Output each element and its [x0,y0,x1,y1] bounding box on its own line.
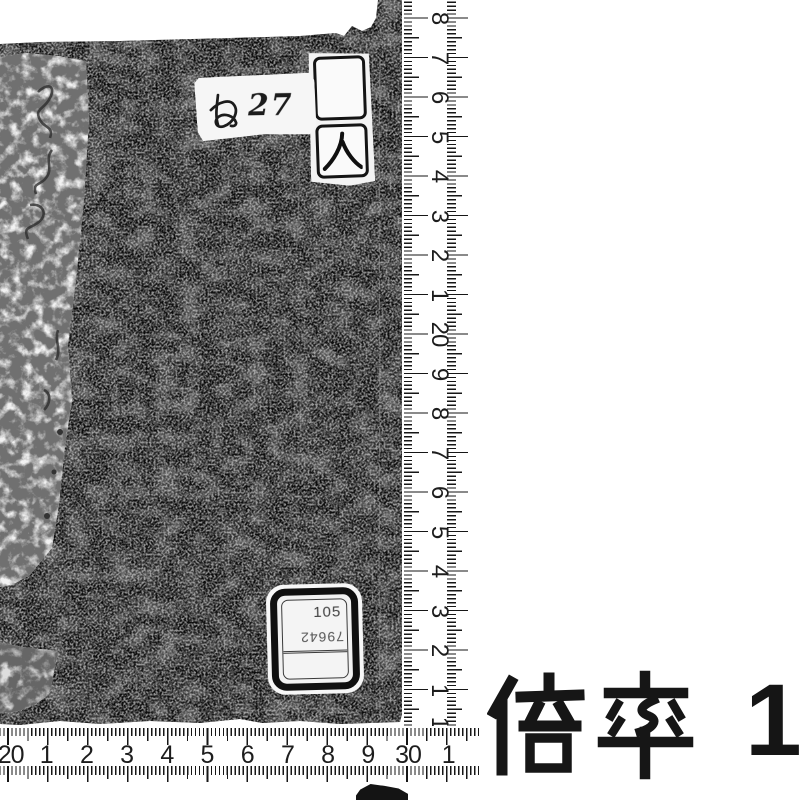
ruler-number: 30 [395,741,421,770]
sticker-line2: 79642 [283,624,348,652]
magnification-kanji-bairitsu-glyphs [487,666,697,786]
ruler-number: 4 [425,554,453,588]
horizontal-ruler: 20123456789301 [0,726,479,782]
ink-dot [52,470,57,475]
ruler-number: 6 [425,475,453,509]
vertical-ruler-numbers: 876543212098765432110 [402,0,468,740]
ruler-number: 9 [425,357,453,391]
sticker-line1: 105 [282,599,347,626]
ruler-number: 1 [425,278,453,312]
ruler-number: 2 [425,633,453,667]
ruler-number: 1 [40,741,53,770]
ruler-number: 5 [425,120,453,154]
ruler-number: 2 [80,741,93,770]
call-label-lower-box: 人 [315,123,369,179]
ruler-number: 2 [425,238,453,272]
ruler-number: 7 [281,741,294,770]
ruler-number: 20 [0,741,24,770]
ruler-number: 4 [425,159,453,193]
call-label-upper-box [313,55,367,121]
ruler-number: 8 [425,396,453,430]
ink-dot [44,513,50,519]
vertical-ruler: 876543212098765432110 [402,0,468,740]
ink-dot [57,429,63,435]
archival-photo-page: 27 ぬ27 人 105 79642 8765 [0,0,800,800]
accession-sticker: 105 79642 [266,583,365,695]
horizontal-ruler-numbers: 20123456789301 [0,726,479,782]
magnification-value: 1/ [745,662,800,779]
call-number-label: 人 [307,51,376,187]
ruler-number: 5 [201,741,214,770]
ruler-number: 7 [425,41,453,75]
ruler-number: 8 [321,741,334,770]
kana-nu-glyph [207,85,246,131]
shelfmark-label: 27 ぬ27 [194,70,318,142]
ruler-number: 8 [425,1,453,35]
ruler-number: 1 [425,673,453,707]
ruler-number: 9 [361,741,374,770]
shelfmark-number: 27 [248,87,294,123]
ruler-number: 3 [120,741,133,770]
ruler-number: 1 [442,741,455,770]
person-kanji-glyph [321,128,363,173]
ruler-number: 5 [425,515,453,549]
kanji-bai [494,678,579,770]
ruler-number: 7 [425,436,453,470]
sticker-line3 [283,651,348,679]
ruler-number: 6 [241,741,254,770]
ruler-number: 3 [425,199,453,233]
ruler-number: 20 [425,317,453,351]
kanji-ritsu [603,676,688,774]
magnification-caption: 倍率 1/ [487,666,800,791]
sticker-fields: 105 79642 [281,598,349,680]
ruler-number: 6 [425,80,453,114]
ruler-number: 4 [160,741,173,770]
ruler-number: 3 [425,594,453,628]
